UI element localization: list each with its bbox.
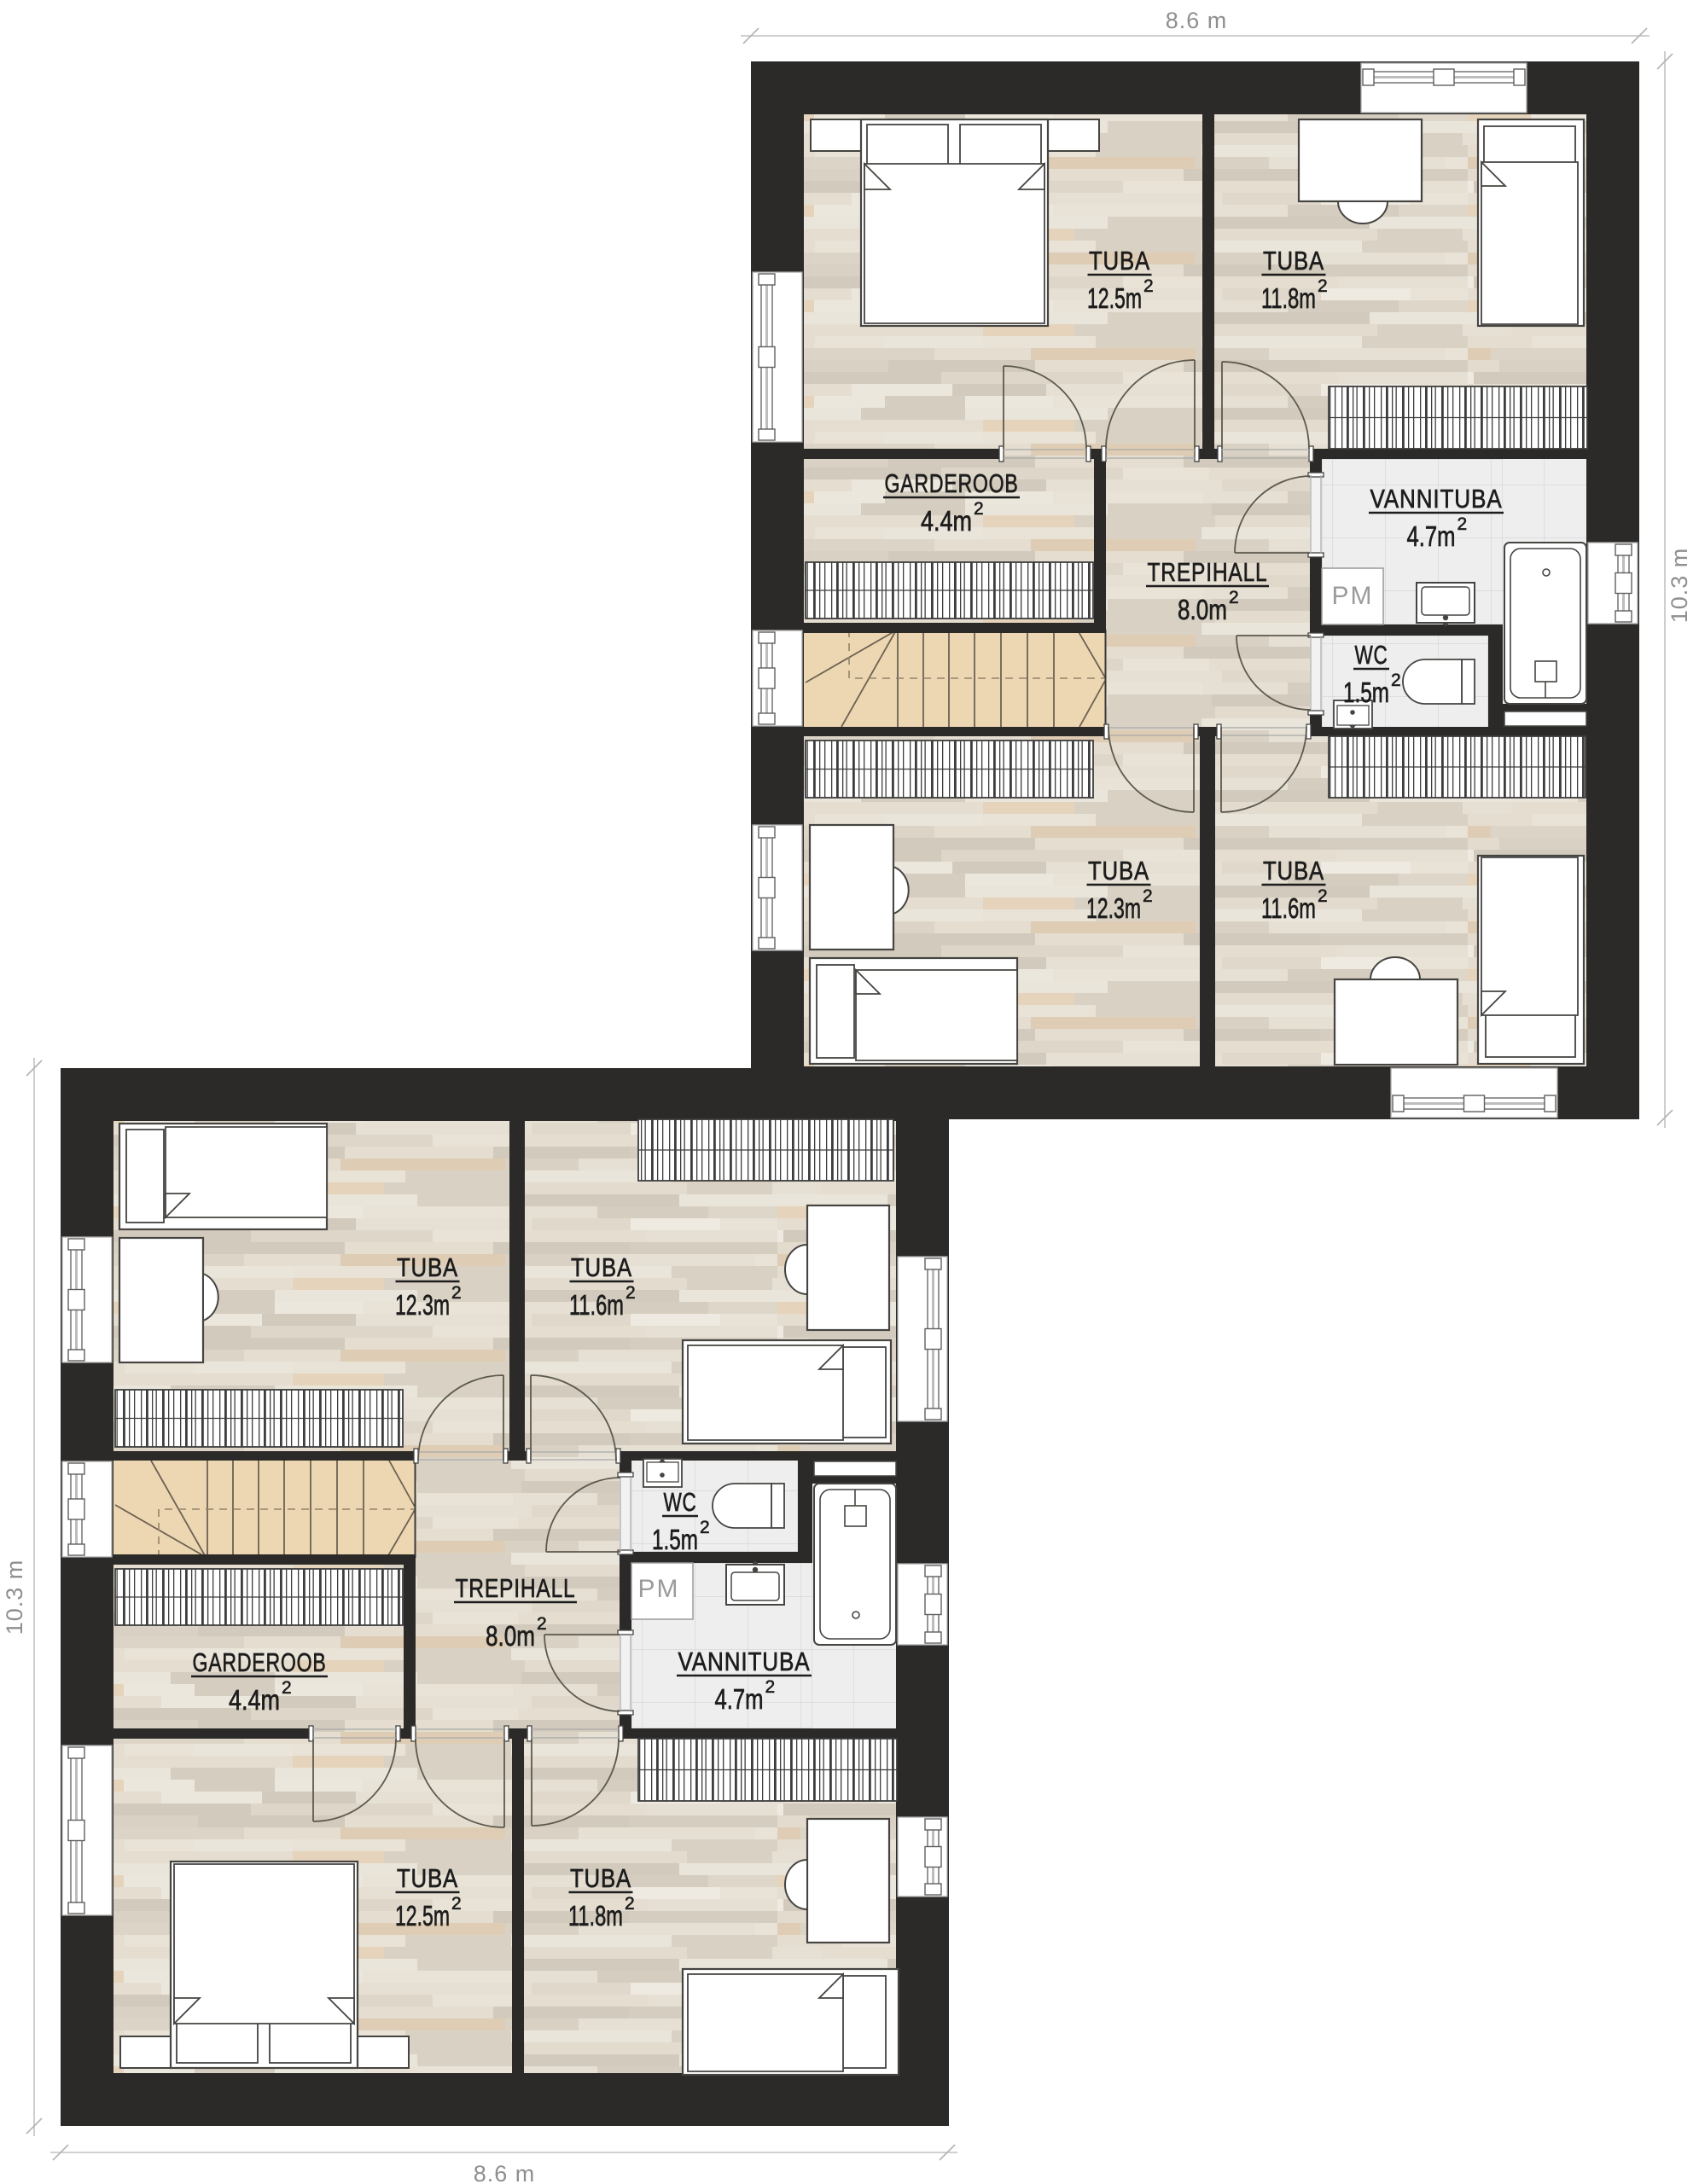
svg-text:10.3 m: 10.3 m: [2, 1560, 27, 1635]
svg-text:11.6m: 11.6m: [1261, 892, 1316, 924]
svg-text:2: 2: [1229, 588, 1239, 607]
svg-text:2: 2: [1391, 671, 1401, 690]
svg-text:TUBA: TUBA: [570, 1863, 631, 1893]
svg-text:2: 2: [1143, 276, 1154, 296]
svg-text:4.7m: 4.7m: [715, 1683, 764, 1715]
svg-text:2: 2: [282, 1678, 292, 1698]
svg-text:8.0m: 8.0m: [486, 1620, 535, 1652]
svg-text:11.8m: 11.8m: [1261, 282, 1316, 314]
svg-text:12.3m: 12.3m: [1086, 892, 1141, 924]
svg-text:WC: WC: [664, 1487, 697, 1517]
svg-text:2: 2: [1318, 276, 1328, 296]
svg-text:11.6m: 11.6m: [569, 1289, 624, 1321]
svg-text:TUBA: TUBA: [1263, 246, 1324, 276]
svg-text:1.5m: 1.5m: [1343, 677, 1389, 708]
svg-text:10.3 m: 10.3 m: [1667, 548, 1692, 624]
svg-text:8.6 m: 8.6 m: [474, 2161, 536, 2184]
svg-text:2: 2: [451, 1283, 462, 1303]
svg-text:TUBA: TUBA: [397, 1252, 458, 1282]
svg-text:8.6 m: 8.6 m: [1166, 8, 1228, 33]
svg-text:TUBA: TUBA: [1088, 856, 1149, 886]
svg-text:2: 2: [1318, 886, 1328, 906]
svg-text:2: 2: [625, 1283, 636, 1303]
svg-text:TUBA: TUBA: [1089, 246, 1150, 276]
svg-text:2: 2: [1458, 514, 1468, 534]
svg-text:TREPIHALL: TREPIHALL: [1148, 557, 1268, 587]
svg-text:2: 2: [451, 1894, 462, 1914]
svg-text:TUBA: TUBA: [397, 1863, 458, 1893]
svg-text:VANNITUBA: VANNITUBA: [1370, 484, 1503, 514]
svg-text:GARDEROOB: GARDEROOB: [193, 1647, 327, 1677]
svg-text:4.7m: 4.7m: [1407, 520, 1456, 552]
svg-text:WC: WC: [1355, 640, 1388, 670]
svg-text:TUBA: TUBA: [1263, 856, 1324, 886]
svg-text:PM: PM: [1332, 582, 1374, 610]
svg-text:TUBA: TUBA: [571, 1252, 632, 1282]
svg-text:2: 2: [974, 499, 984, 519]
svg-text:12.3m: 12.3m: [395, 1289, 450, 1321]
svg-text:12.5m: 12.5m: [395, 1900, 450, 1931]
svg-text:2: 2: [625, 1894, 635, 1914]
svg-text:PM: PM: [638, 1575, 680, 1603]
svg-text:2: 2: [700, 1518, 710, 1537]
svg-text:2: 2: [1143, 886, 1153, 906]
svg-text:GARDEROOB: GARDEROOB: [885, 468, 1019, 498]
svg-text:2: 2: [765, 1677, 776, 1697]
svg-text:11.8m: 11.8m: [568, 1900, 623, 1931]
svg-text:TREPIHALL: TREPIHALL: [456, 1573, 576, 1603]
svg-text:4.4m: 4.4m: [229, 1684, 280, 1716]
svg-text:4.4m: 4.4m: [921, 505, 972, 537]
svg-text:8.0m: 8.0m: [1178, 594, 1227, 625]
svg-text:VANNITUBA: VANNITUBA: [678, 1647, 811, 1676]
svg-text:2: 2: [537, 1614, 547, 1634]
svg-text:12.5m: 12.5m: [1087, 282, 1142, 314]
svg-text:1.5m: 1.5m: [652, 1524, 698, 1555]
